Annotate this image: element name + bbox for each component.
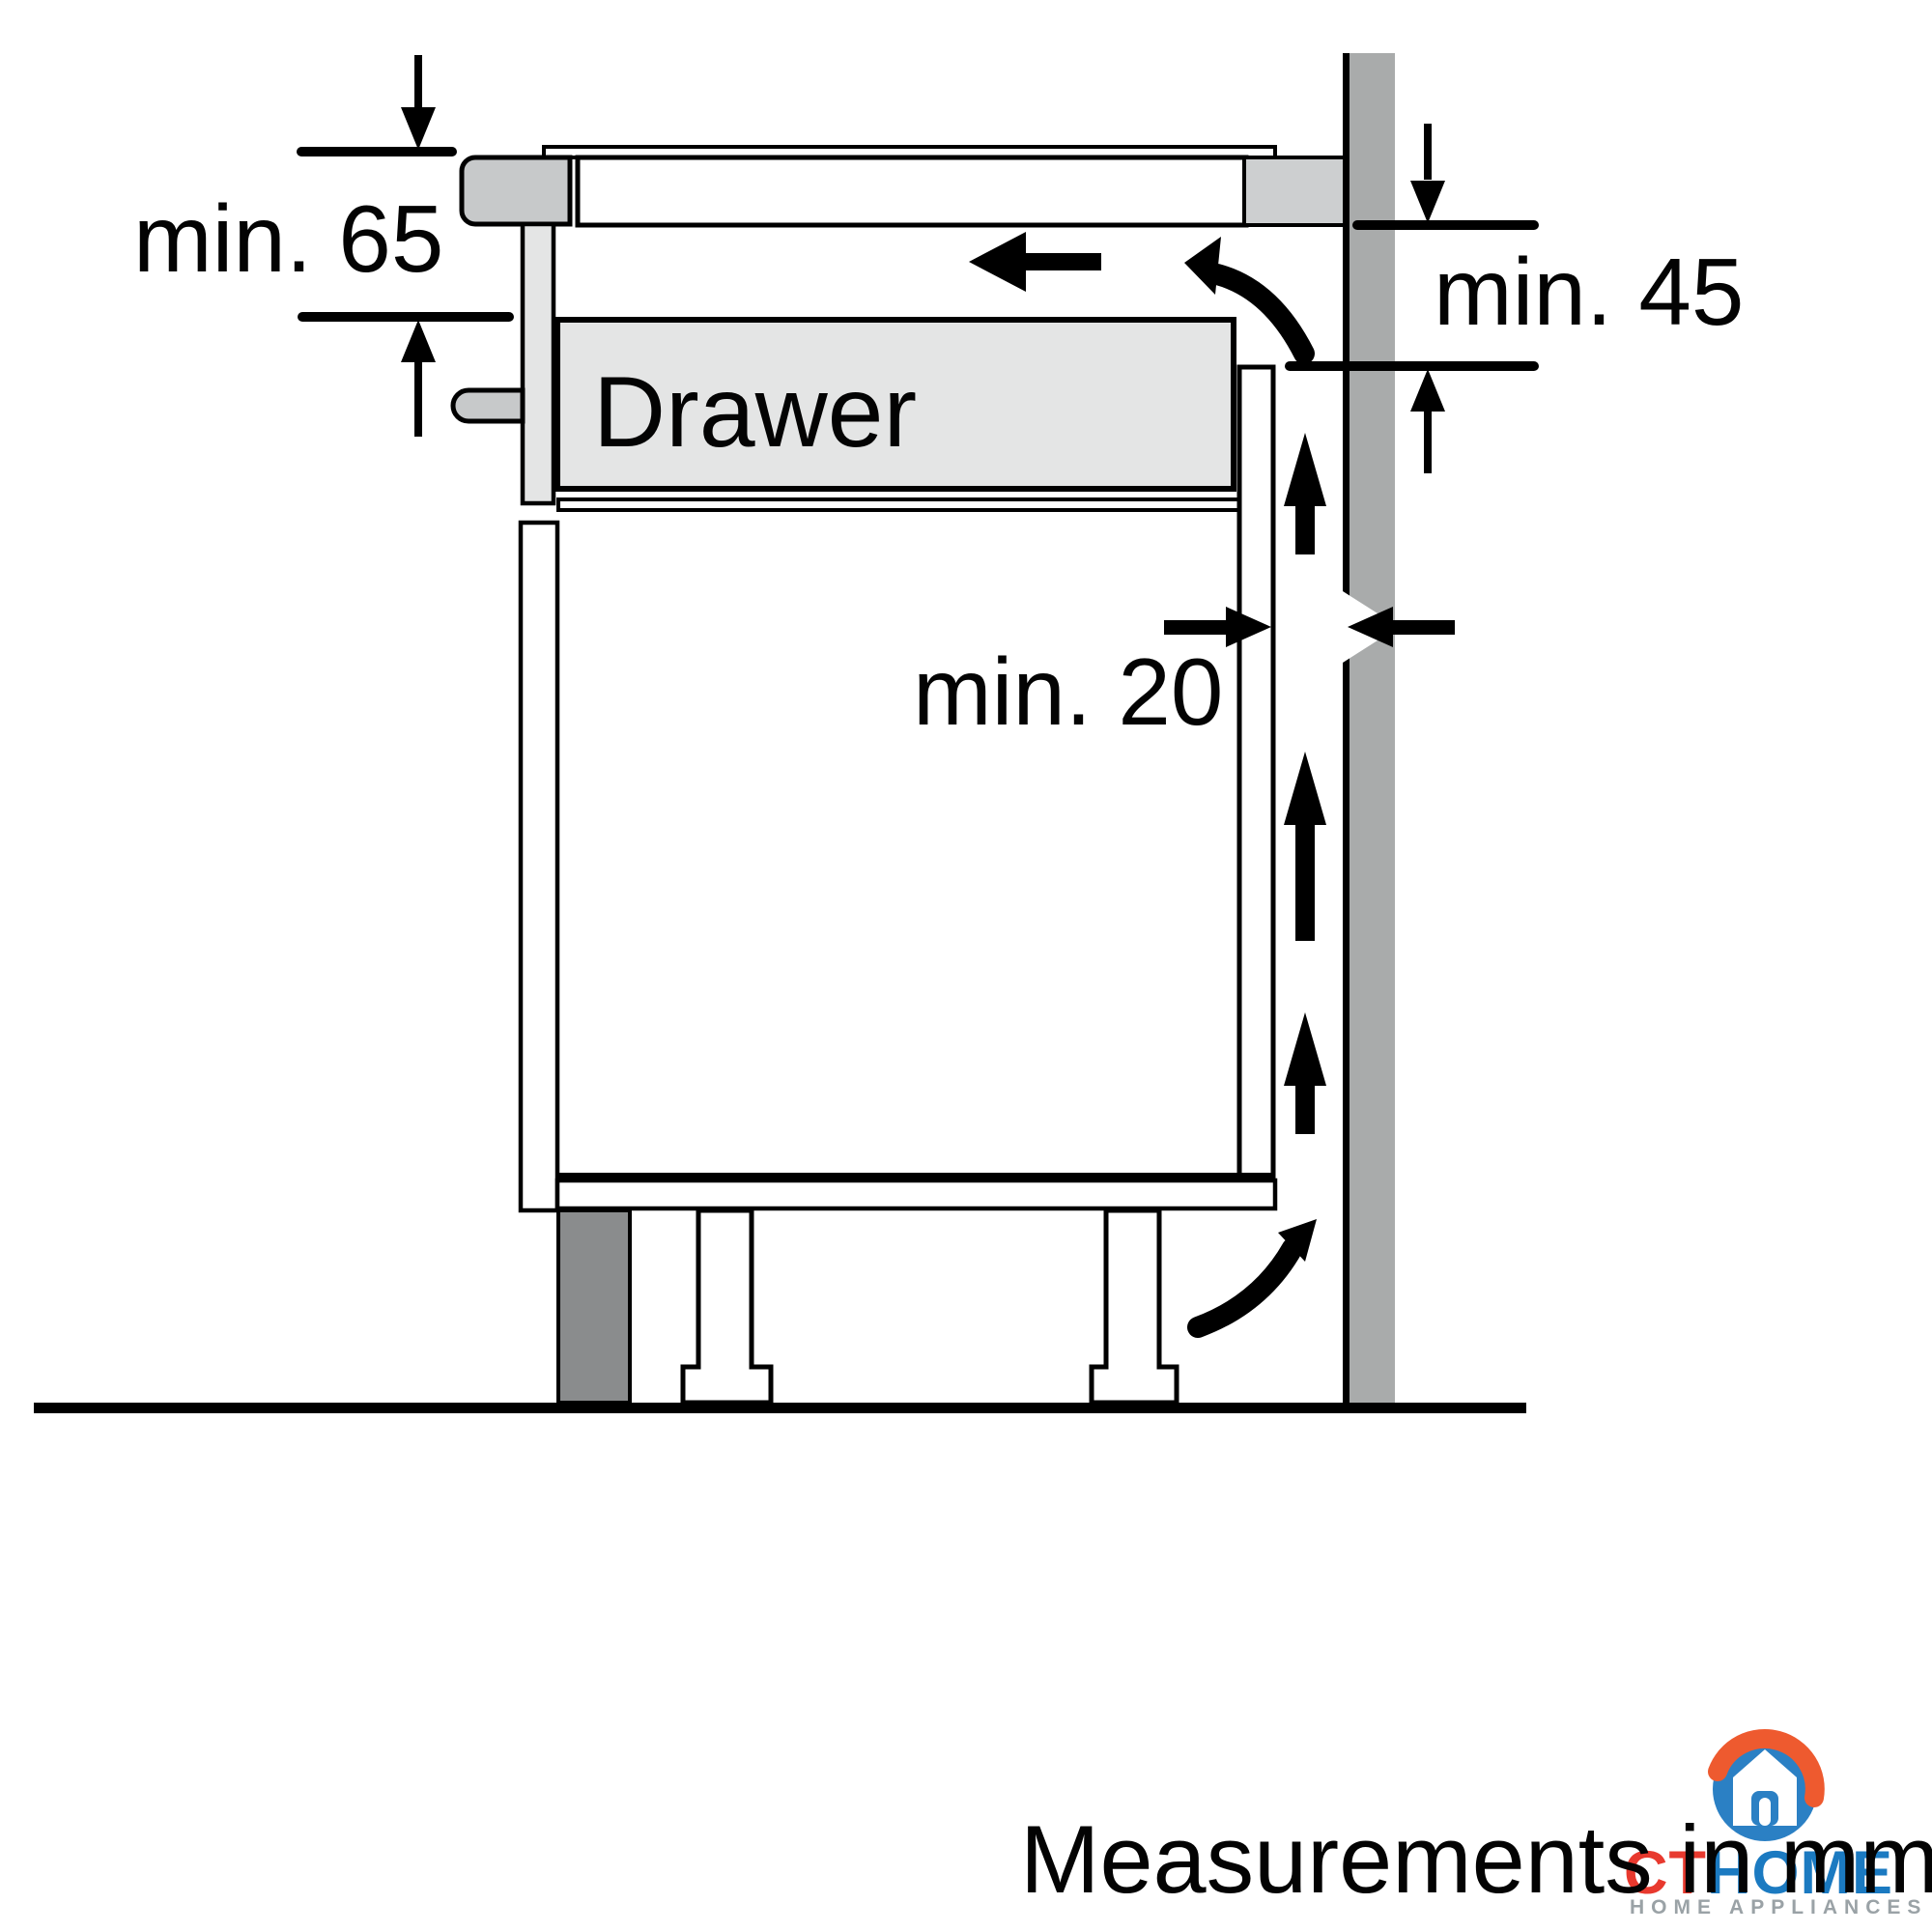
floor-line [34, 1403, 1526, 1413]
cabinet-back-panel [1239, 367, 1273, 1177]
cabinet-leg-back [1092, 1210, 1177, 1403]
hob-front-profile [462, 157, 570, 224]
hob-body-strip [523, 224, 554, 503]
plinth-panel [558, 1210, 630, 1403]
airflow-up-arrow-3-head [1284, 1012, 1326, 1086]
installation-diagram: min. 65 min. 45 min. 20 Drawer CTHOME HO… [0, 0, 1932, 1932]
airflow-curve-top-head [1184, 237, 1221, 295]
dim-label-min-45: min. 45 [1434, 244, 1744, 339]
dim65-down-arrow-shaft [414, 55, 422, 110]
dim20-right-arrow-shaft [1164, 620, 1228, 635]
cabinet-leg-front [683, 1210, 771, 1403]
hob-junction-box [453, 390, 523, 421]
dim65-down-arrow-head [401, 107, 436, 150]
dim45-down-arrow-head [1410, 181, 1445, 223]
airflow-left-arrow-shaft [1026, 253, 1101, 270]
airflow-up-arrow-3-shaft [1295, 1086, 1315, 1134]
airflow-up-arrow-2-head [1284, 752, 1326, 825]
wall-edge-line [1343, 53, 1350, 1403]
airflow-up-arrow-1-head [1284, 433, 1326, 506]
dim45-up-arrow-shaft [1424, 412, 1432, 473]
dim45-down-arrow-shaft [1424, 124, 1432, 180]
airflow-up-arrow-2-shaft [1295, 825, 1315, 941]
cabinet-bottom-board [557, 1180, 1275, 1208]
cabinet-front-panel [521, 523, 557, 1210]
airflow-curve-bottom [1198, 1248, 1293, 1327]
countertop [578, 157, 1246, 225]
dim65-up-arrow-head [401, 320, 436, 362]
drawer-label: Drawer [593, 362, 917, 463]
airflow-left-arrow-head [969, 232, 1026, 292]
wall [1350, 53, 1395, 1403]
dim20-left-arrow-shaft [1393, 620, 1455, 635]
measurements-note: Measurements in mm [1020, 1811, 1932, 1907]
dim-label-min-65: min. 65 [133, 191, 443, 286]
dim-label-min-20: min. 20 [913, 644, 1223, 739]
drawer-shelf-board [558, 499, 1239, 510]
dim65-up-arrow-shaft [414, 362, 422, 437]
worktop-wall-spacer [1244, 157, 1345, 225]
airflow-up-arrow-1-shaft [1295, 506, 1315, 554]
dim45-up-arrow-head [1410, 369, 1445, 412]
